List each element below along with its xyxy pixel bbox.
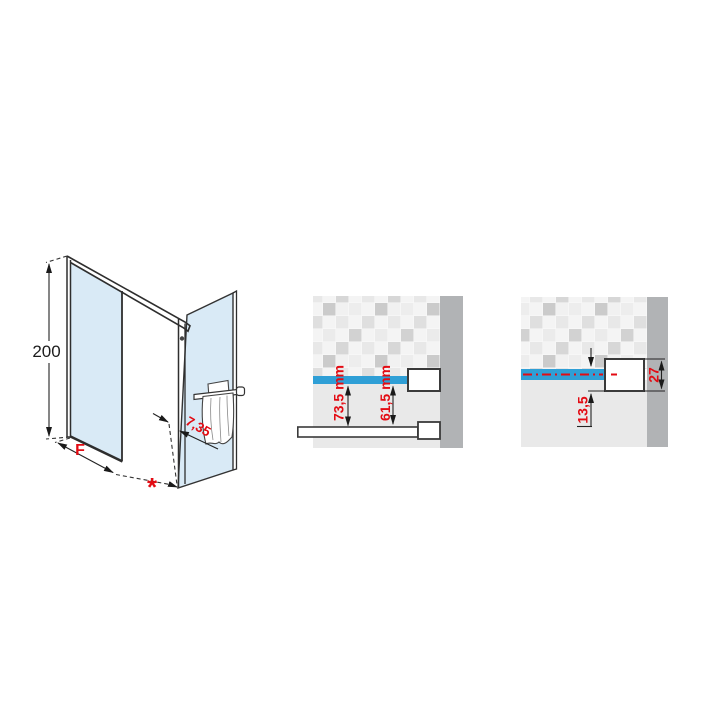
left-wall-profile bbox=[67, 256, 71, 437]
glass-panel-section bbox=[313, 376, 408, 384]
lower-rail-section bbox=[298, 427, 418, 437]
front-panel-glass bbox=[71, 262, 123, 461]
wall-profile-detail-left: 73,5 mm 61,5 mm bbox=[297, 290, 472, 452]
lower-rail-bracket bbox=[418, 422, 440, 439]
profile-dimension-label: 27 bbox=[646, 367, 662, 383]
post-knob-icon bbox=[180, 336, 184, 340]
wall-profile-detail-right: 13,5 27 bbox=[517, 290, 685, 452]
wall-profile-section bbox=[408, 369, 440, 391]
side-wall bbox=[440, 296, 463, 448]
offset-dimension-label: 13,5 bbox=[575, 396, 591, 423]
towel-rail-end-cap bbox=[237, 387, 245, 396]
inner-dimension: 61,5 mm bbox=[377, 365, 393, 424]
isometric-enclosure-diagram: 200 F * 7,35 bbox=[30, 243, 260, 508]
wall-profile-section bbox=[605, 359, 644, 391]
height-dim-label: 200 bbox=[32, 342, 60, 361]
asterisk-label: * bbox=[147, 472, 158, 502]
width-dim-label: F bbox=[75, 442, 85, 459]
outer-dimension: 73,5 mm bbox=[331, 365, 349, 426]
height-dimension: 200 bbox=[32, 256, 70, 439]
inner-dimension-label: 61,5 mm bbox=[377, 365, 393, 421]
technical-drawing-page: 200 F * 7,35 bbox=[0, 0, 720, 720]
outer-dimension-label: 73,5 mm bbox=[331, 365, 347, 421]
front-panel bbox=[67, 256, 190, 462]
tiled-wall bbox=[313, 296, 440, 376]
